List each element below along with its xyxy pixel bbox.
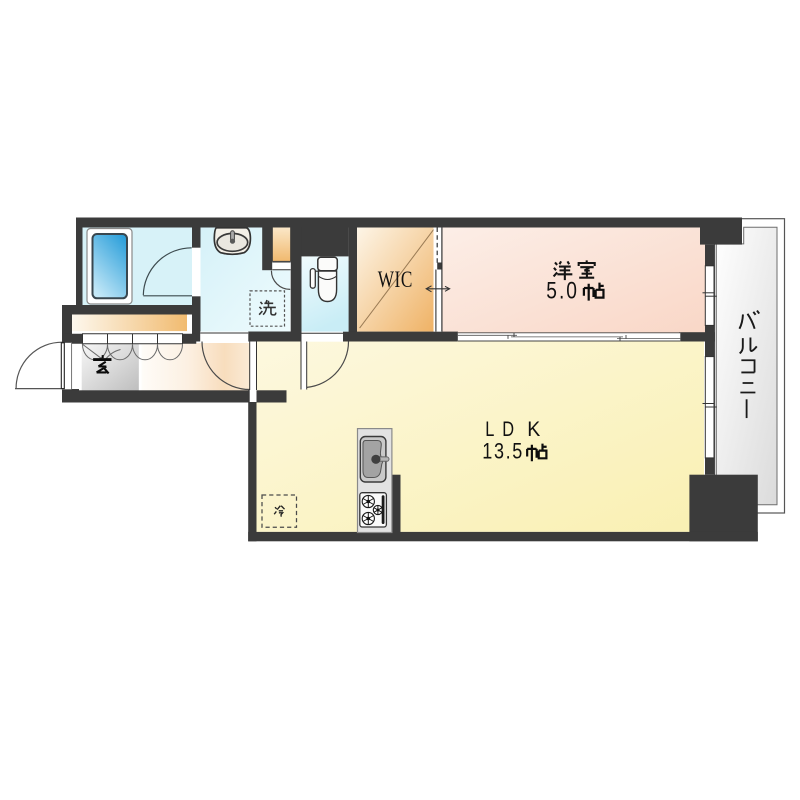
svg-text:L: L bbox=[485, 417, 494, 440]
svg-text:13.5: 13.5 bbox=[482, 440, 524, 464]
svg-text:5.0: 5.0 bbox=[546, 277, 579, 305]
svg-text:K: K bbox=[527, 418, 540, 441]
svg-text:D: D bbox=[502, 417, 514, 440]
svg-text:WIC: WIC bbox=[378, 268, 413, 293]
